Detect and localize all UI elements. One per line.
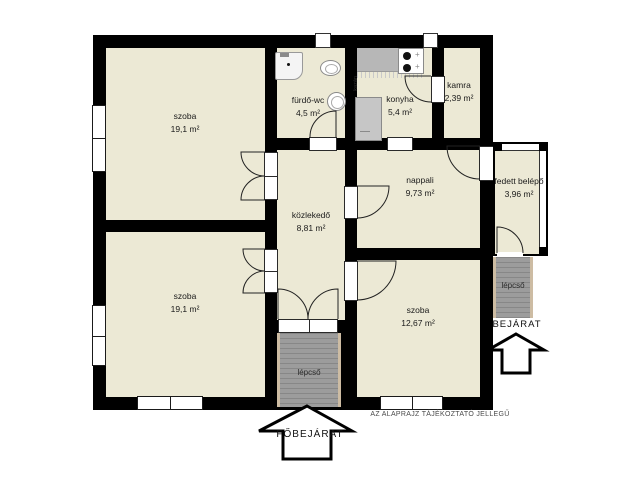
boiler	[355, 97, 382, 141]
stairs-side-label: lépcső	[501, 281, 524, 290]
floor-plan: + + kazán lépcső lépcső	[0, 0, 640, 480]
disclaimer-text: AZ ALAPRAJZ TÁJÉKOZTATÓ JELLEGŰ	[370, 411, 509, 418]
room-label-szoba-bottom-right: szoba 12,67 m²	[401, 304, 435, 330]
room-name: szoba	[401, 304, 435, 317]
door-opening-szoba-bottom-right	[344, 261, 358, 301]
room-label-szoba-bottom-left: szoba 19,1 m²	[171, 290, 200, 316]
room-area: 3,96 m²	[494, 188, 543, 201]
room-area: 19,1 m²	[171, 303, 200, 316]
room-name: közlekedő	[292, 209, 330, 222]
room-name: szoba	[171, 290, 200, 303]
room-label-nappali: nappali 9,73 m²	[406, 174, 435, 200]
door-opening-szoba-top	[264, 152, 278, 200]
room-name: konyha	[386, 93, 413, 106]
room-area: 4,5 m²	[292, 107, 325, 120]
room-area: 9,73 m²	[406, 187, 435, 200]
door-opening-nappali	[344, 186, 358, 219]
chimney-vent-right	[423, 33, 438, 48]
porch-post	[539, 144, 546, 151]
chimney-vent-left	[315, 33, 331, 48]
shower-icon	[275, 52, 303, 80]
door-opening-szoba-bottom-left	[264, 249, 278, 293]
room-label-kozlekedo: közlekedő 8,81 m²	[292, 209, 330, 235]
passage-konyha-nappali	[387, 137, 413, 151]
room-label-konyha: konyha 5,4 m²	[386, 93, 413, 119]
room-label-furdo-wc: fürdő-wc 4,5 m²	[292, 94, 325, 120]
door-opening-porch	[479, 146, 494, 181]
room-area: 12,67 m²	[401, 317, 435, 330]
kitchen-counter	[357, 48, 400, 72]
room-name: fedett belépő	[494, 175, 543, 188]
entrance-label: BEJÁRAT	[492, 319, 541, 330]
window-left-top	[92, 105, 106, 172]
room-name: szoba	[171, 110, 200, 123]
window-bottom-right	[380, 396, 443, 410]
room-name: kamra	[445, 79, 474, 92]
toilet-icon	[320, 60, 341, 76]
stairs-main-label: lépcső	[297, 368, 320, 377]
window-left-bottom	[92, 305, 106, 366]
room-kozlekedo	[277, 150, 345, 320]
entrance-arrow	[488, 334, 544, 373]
room-label-szoba-top: szoba 19,1 m²	[171, 110, 200, 136]
door-opening-kamra	[431, 76, 445, 103]
sink-icon	[327, 92, 346, 111]
room-area: 2,39 m²	[445, 92, 474, 105]
room-area: 5,4 m²	[386, 106, 413, 119]
room-area: 19,1 m²	[171, 123, 200, 136]
porch-railing-top	[500, 144, 541, 151]
boiler-label: kazán	[353, 76, 359, 91]
porch-post	[495, 144, 502, 151]
main-entrance-label: FŐBEJÁRAT	[276, 429, 343, 440]
stove-icon: + +	[398, 48, 424, 74]
window-bottom-left	[137, 396, 203, 410]
porch-post	[539, 247, 546, 254]
room-label-fedett-belepo: fedett belépő 3,96 m²	[494, 175, 543, 201]
room-label-kamra: kamra 2,39 m²	[445, 79, 474, 105]
door-opening-furdo	[309, 137, 337, 151]
room-name: nappali	[406, 174, 435, 187]
door-opening-stairs	[278, 319, 338, 333]
room-name: fürdő-wc	[292, 94, 325, 107]
room-area: 8,81 m²	[292, 222, 330, 235]
